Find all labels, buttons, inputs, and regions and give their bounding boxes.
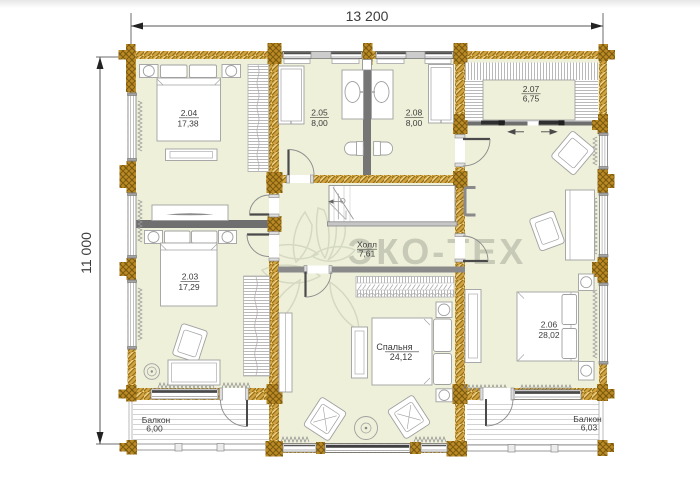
svg-text:6,00: 6,00: [146, 424, 163, 434]
svg-text:Спальня: Спальня: [376, 342, 412, 352]
svg-text:6,03: 6,03: [581, 423, 598, 433]
svg-text:8,00: 8,00: [311, 118, 328, 128]
svg-text:28,02: 28,02: [538, 330, 560, 340]
svg-text:2.06: 2.06: [541, 320, 558, 330]
svg-text:2.04: 2.04: [181, 108, 198, 118]
svg-text:2.08: 2.08: [406, 108, 423, 118]
svg-text:6,75: 6,75: [523, 94, 540, 104]
svg-text:24,12: 24,12: [390, 352, 413, 362]
svg-text:8,00: 8,00: [406, 118, 423, 128]
svg-text:17,38: 17,38: [177, 119, 199, 129]
svg-text:2.05: 2.05: [311, 108, 328, 118]
svg-text:13 200: 13 200: [346, 8, 389, 24]
svg-text:2.07: 2.07: [523, 84, 540, 94]
svg-text:7,61: 7,61: [359, 249, 376, 259]
svg-text:17,29: 17,29: [178, 282, 200, 292]
svg-text:11 000: 11 000: [78, 232, 94, 274]
svg-text:2.03: 2.03: [182, 272, 199, 282]
